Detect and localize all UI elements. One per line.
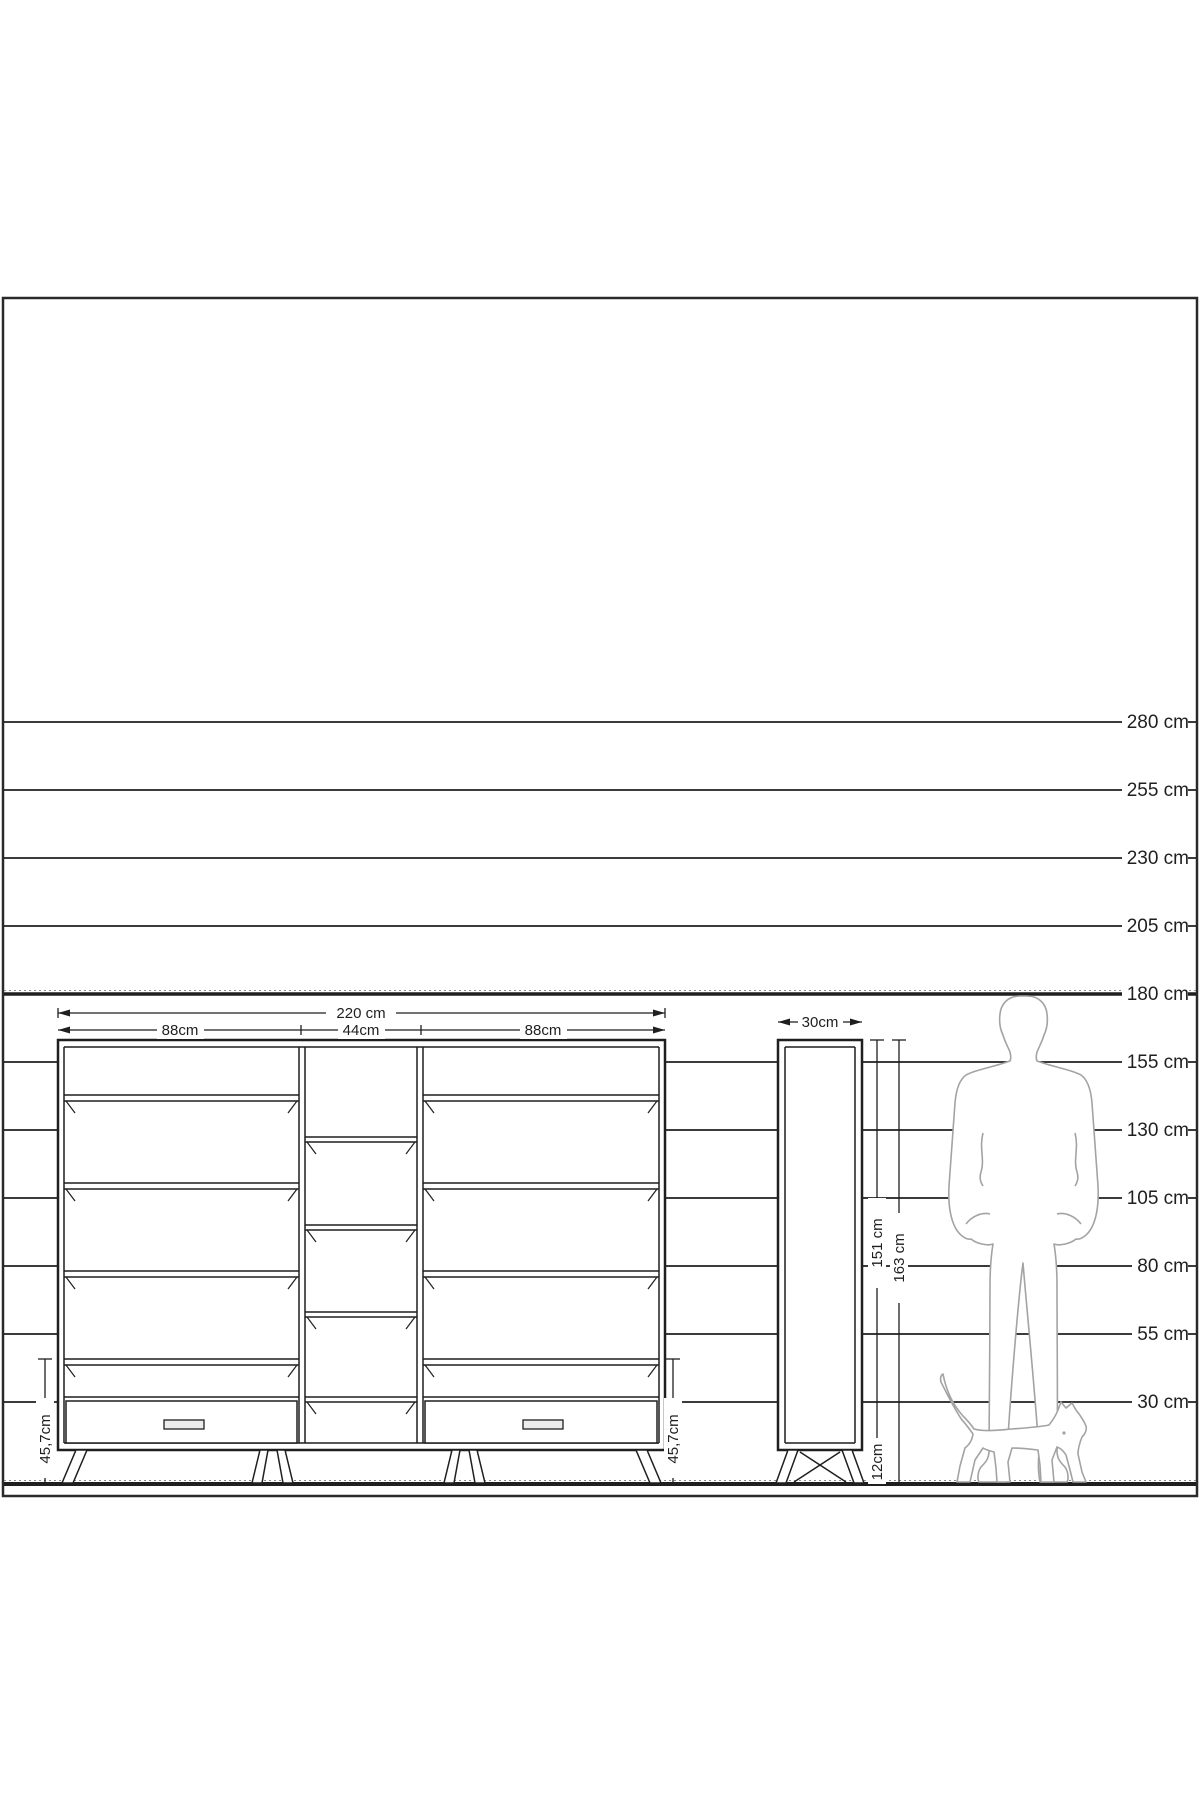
ruler-label-105: 105 cm: [1127, 1188, 1189, 1209]
wide-cabinet-legs: [62, 1450, 661, 1483]
dim-total-height: 163 cm: [891, 1233, 908, 1282]
dim-base-height-right: 45,7cm: [665, 1414, 682, 1463]
dim-left-section: 88cm: [162, 1022, 199, 1039]
ruler-label-205: 205 cm: [1127, 916, 1189, 937]
cat-eye-dot: [1063, 1432, 1065, 1434]
ruler-label-30: 30 cm: [1137, 1392, 1189, 1413]
tall-cabinet-legs: [776, 1450, 864, 1483]
ruler-label-255: 255 cm: [1127, 780, 1189, 801]
dim-middle-section: 44cm: [343, 1022, 380, 1039]
ruler-label-280: 280 cm: [1127, 712, 1189, 733]
wide-cabinet-front-view: [58, 1040, 665, 1483]
tall-cabinet-side-view: [776, 1040, 864, 1483]
ruler-label-180: 180 cm: [1127, 984, 1189, 1005]
dim-tall-width: 30cm: [802, 1014, 839, 1031]
ruler-label-55: 55 cm: [1137, 1324, 1189, 1345]
dim-total-width: 220 cm: [336, 1005, 385, 1022]
height-ruler-labels: 280 cm 255 cm 230 cm 205 cm 180 cm 155 c…: [1122, 710, 1189, 1414]
ruler-label-230: 230 cm: [1127, 848, 1189, 869]
dim-right-section: 88cm: [525, 1022, 562, 1039]
ruler-label-155: 155 cm: [1127, 1052, 1189, 1073]
ruler-label-130: 130 cm: [1127, 1120, 1189, 1141]
dim-body-height: 151 cm: [869, 1218, 886, 1267]
right-drawer-handle[interactable]: [523, 1420, 563, 1429]
dim-leg-height: 12cm: [869, 1444, 886, 1481]
dim-base-height-left: 45,7cm: [37, 1414, 54, 1463]
tall-cabinet-body: [778, 1040, 862, 1450]
left-drawer-handle[interactable]: [164, 1420, 204, 1429]
furniture-dimension-diagram: 220 cm 88cm 44cm 88cm 30cm 151 cm 163 cm…: [0, 0, 1200, 1800]
ruler-label-80: 80 cm: [1137, 1256, 1189, 1277]
